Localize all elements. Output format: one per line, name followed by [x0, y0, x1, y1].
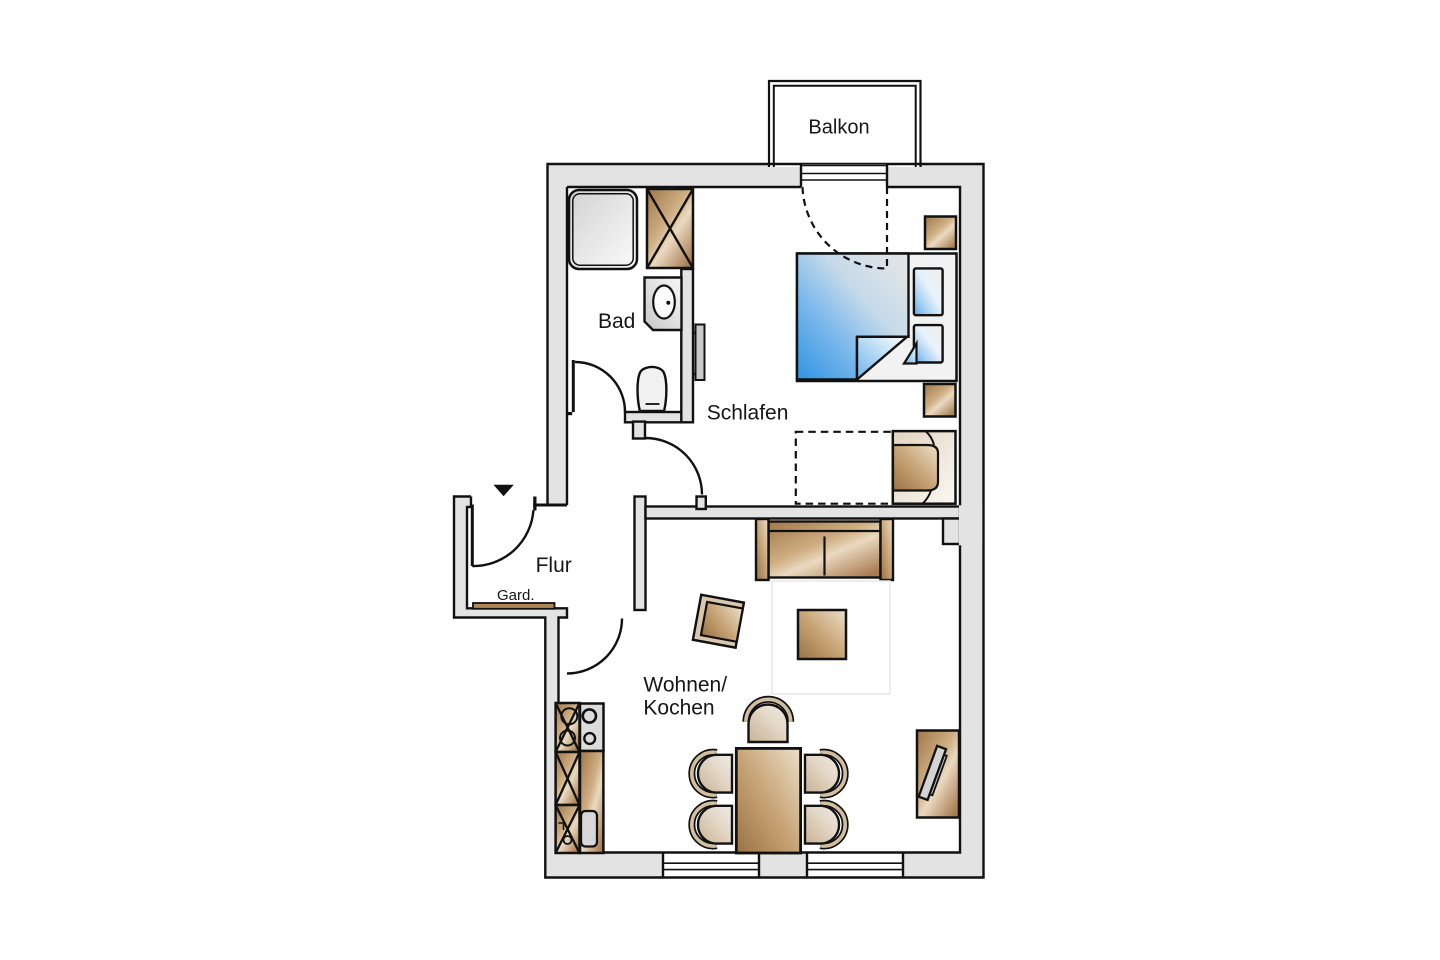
svg-text:Gard.: Gard. [497, 587, 535, 604]
svg-text:Kochen: Kochen [643, 697, 714, 720]
svg-text:Balkon: Balkon [808, 116, 869, 138]
svg-text:Schlafen: Schlafen [707, 402, 789, 425]
svg-text:Flur: Flur [536, 554, 572, 577]
svg-text:Bad: Bad [598, 310, 635, 333]
svg-text:Wohnen/: Wohnen/ [643, 673, 727, 696]
